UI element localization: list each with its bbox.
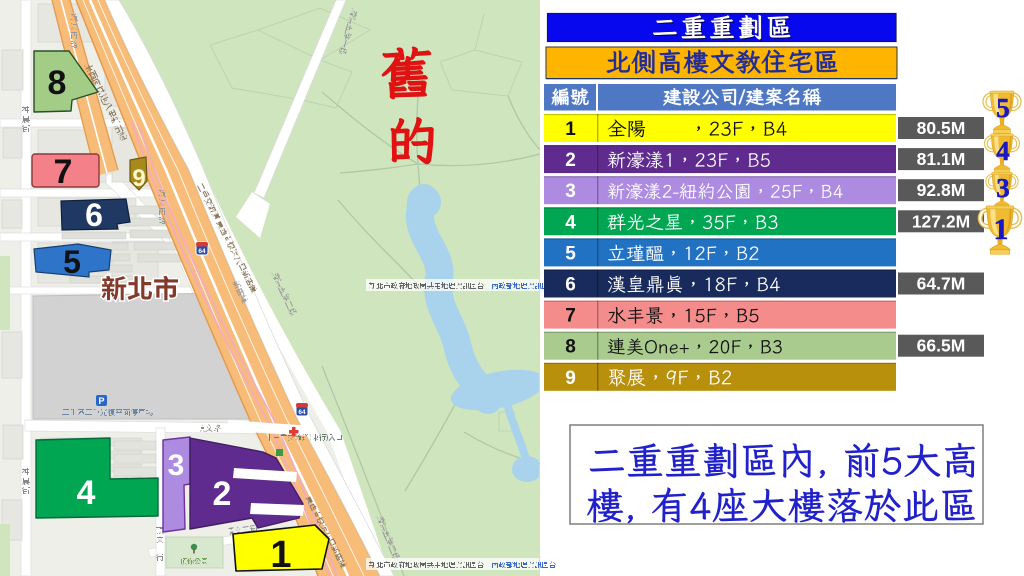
svg-text:5: 5: [63, 244, 81, 280]
svg-text:6: 6: [565, 275, 576, 296]
svg-text:7: 7: [54, 153, 73, 191]
svg-text:9: 9: [565, 368, 576, 389]
svg-text:127.2M: 127.2M: [912, 211, 970, 231]
svg-text:64: 64: [198, 248, 206, 255]
svg-text:4: 4: [996, 136, 1010, 166]
svg-text:9: 9: [132, 165, 145, 192]
svg-text:2: 2: [565, 150, 576, 171]
svg-text:3: 3: [996, 173, 1010, 203]
svg-text:3: 3: [565, 181, 576, 202]
svg-text:80.5M: 80.5M: [917, 118, 966, 138]
svg-text:4: 4: [77, 474, 96, 512]
svg-text:1: 1: [994, 213, 1009, 246]
svg-text:3: 3: [168, 449, 185, 482]
svg-text:2: 2: [213, 475, 232, 513]
svg-text:5: 5: [565, 243, 576, 264]
svg-text:P: P: [98, 396, 104, 406]
svg-text:6: 6: [85, 197, 103, 233]
svg-text:4: 4: [565, 212, 576, 233]
svg-text:5: 5: [996, 93, 1010, 123]
svg-text:92.8M: 92.8M: [917, 180, 966, 200]
svg-text:64: 64: [298, 409, 306, 416]
svg-text:1: 1: [270, 534, 291, 576]
svg-text:7: 7: [565, 306, 576, 327]
svg-text:8: 8: [48, 64, 67, 102]
svg-text:8: 8: [565, 337, 576, 358]
svg-text:81.1M: 81.1M: [917, 149, 966, 169]
svg-text:64.7M: 64.7M: [917, 274, 966, 294]
svg-text:1: 1: [565, 119, 576, 140]
svg-text:66.5M: 66.5M: [917, 336, 966, 356]
